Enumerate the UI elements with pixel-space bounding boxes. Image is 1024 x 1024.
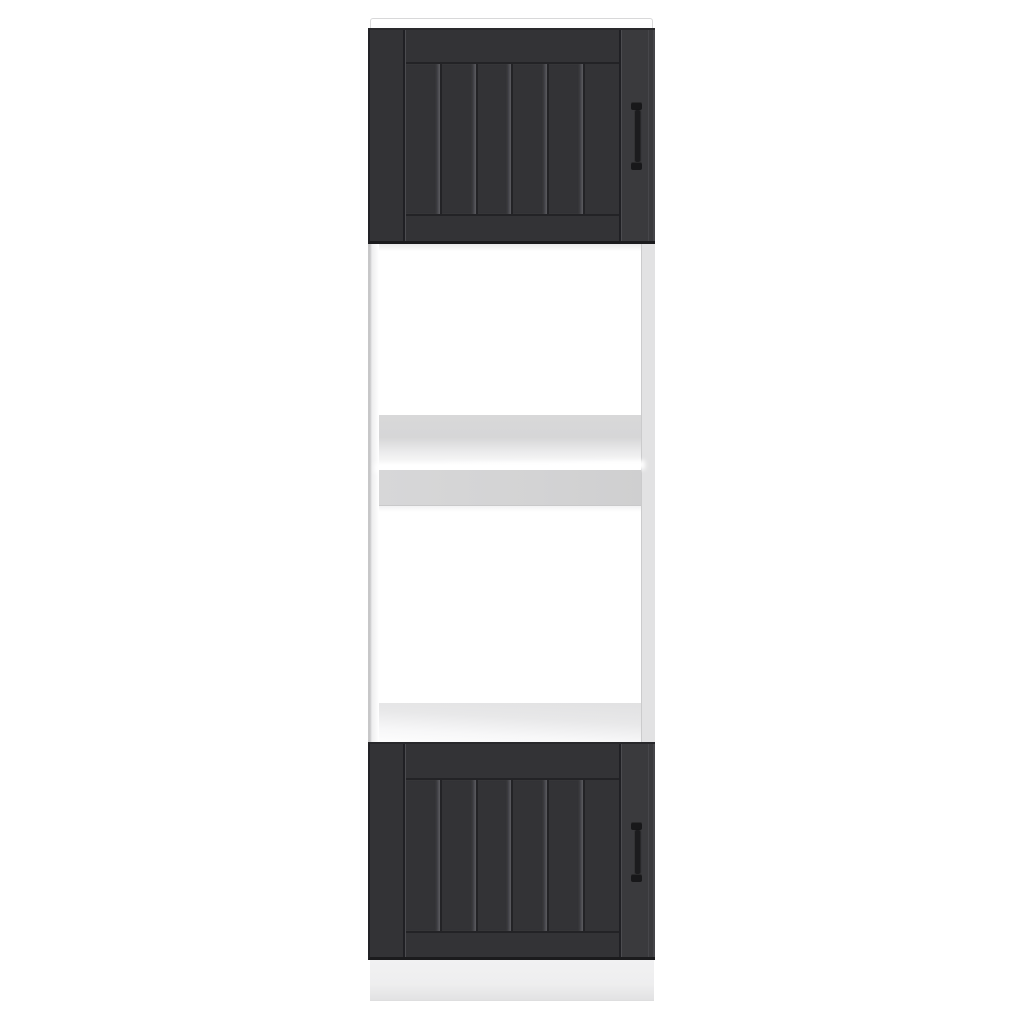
product-photo-scene [0,0,1024,1024]
cabinet-side-edge-upper [648,30,655,241]
lower-door-handle [630,822,643,882]
upper-door-stile-left [370,30,403,241]
upper-cabinet-door [368,28,655,244]
open-compartment-section [368,244,655,742]
lower-door-beadboard-panel [406,778,619,933]
door-plank [478,780,514,931]
door-plank [549,780,585,931]
bottom-shelf-surface [379,703,641,742]
door-plank [442,64,478,214]
lower-door-rail-bottom [406,933,619,957]
lower-door-stile-left [370,744,403,957]
handle-mount-top [631,102,642,110]
door-plank [585,780,619,931]
door-plank [513,780,549,931]
door-plank [478,64,514,214]
handle-mount-bottom [631,162,642,170]
upper-door-rail-top [406,30,619,62]
carcass-right-edge [641,244,655,742]
upper-door-rail-bottom [406,216,619,241]
upper-door-handle [630,102,643,170]
door-plank [585,64,619,214]
lower-open-compartment [379,505,641,703]
door-plank [513,64,549,214]
carcass-left-edge [368,244,379,742]
upper-door-center [406,30,619,241]
lower-door-rail-top [406,744,619,778]
middle-shelf-front-edge [379,470,641,505]
handle-bar [634,110,640,162]
door-plank [549,64,585,214]
handle-mount-bottom [631,874,642,882]
door-plank [442,780,478,931]
cabinet-side-edge-lower [648,744,655,957]
lower-door-center [406,744,619,957]
handle-mount-top [631,822,642,830]
tall-kitchen-cabinet [368,18,655,1000]
door-plank [406,64,442,214]
door-plank [406,780,442,931]
upper-door-beadboard-panel [406,62,619,216]
lower-cabinet-door [368,742,655,960]
upper-open-compartment [379,244,641,415]
cabinet-base-plinth [370,960,654,1001]
carcass-interior [379,244,641,742]
middle-shelf-surface [379,415,641,465]
handle-bar [634,830,640,874]
